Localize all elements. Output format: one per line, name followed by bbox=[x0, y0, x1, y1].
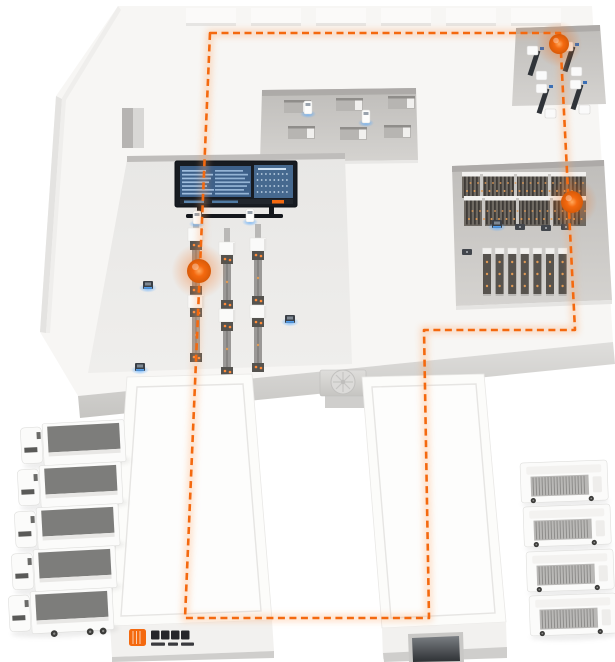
foot-indicator bbox=[260, 300, 263, 303]
roof-skylight bbox=[316, 8, 366, 26]
roof-skylight bbox=[446, 8, 496, 26]
carton-shade bbox=[233, 243, 235, 255]
screen-dot bbox=[282, 179, 284, 181]
box-truck bbox=[526, 549, 615, 598]
brand-char-block bbox=[161, 631, 170, 640]
screen-dot bbox=[278, 191, 280, 193]
workstation-desk bbox=[340, 127, 367, 140]
screen-header-line bbox=[258, 168, 286, 170]
device-panel bbox=[287, 317, 293, 320]
marker-dot bbox=[187, 259, 211, 283]
trailer-top bbox=[47, 423, 120, 453]
screen-dot bbox=[282, 191, 284, 193]
screen-dot bbox=[257, 179, 259, 181]
rack-column bbox=[546, 248, 555, 296]
marker-dot bbox=[561, 191, 583, 213]
screen-dot bbox=[257, 185, 259, 187]
hvac-fan-hub bbox=[341, 380, 345, 384]
cab-window bbox=[27, 558, 31, 565]
factory-illustration bbox=[0, 0, 615, 662]
screen-dot bbox=[269, 173, 271, 175]
station-conveyor-line bbox=[171, 243, 226, 298]
screen-dot bbox=[265, 179, 267, 181]
foot-indicator bbox=[255, 366, 258, 369]
screen-text-line bbox=[215, 189, 244, 191]
device-led bbox=[286, 321, 294, 323]
marker-highlight bbox=[192, 263, 199, 270]
rail-indicator bbox=[257, 344, 259, 346]
workstation-desk bbox=[388, 96, 415, 109]
rack-shuttle bbox=[541, 225, 551, 231]
screen-dot bbox=[269, 191, 271, 193]
screen-dot bbox=[278, 179, 280, 181]
dashboard-bar-accent bbox=[272, 200, 284, 204]
foot-indicator bbox=[224, 370, 227, 373]
foot-indicator bbox=[224, 325, 227, 328]
cab-stripe bbox=[18, 531, 31, 537]
cab-window bbox=[30, 516, 34, 523]
rack-column bbox=[533, 248, 542, 296]
screen-dot bbox=[286, 179, 288, 181]
screen-text-line bbox=[215, 178, 245, 180]
screen-dot bbox=[278, 185, 280, 187]
screen-dot bbox=[265, 185, 267, 187]
trailer-top bbox=[44, 465, 117, 495]
roof-skylight bbox=[186, 8, 236, 26]
conveyor-foot bbox=[252, 251, 264, 260]
rail-indicator bbox=[226, 348, 228, 350]
cab-block bbox=[596, 520, 606, 536]
semi-truck bbox=[8, 587, 119, 640]
screen-dot bbox=[269, 179, 271, 181]
dock-right-inner-floor bbox=[372, 384, 495, 618]
device-led bbox=[136, 369, 144, 371]
cab-window bbox=[36, 432, 40, 439]
screen-text-line bbox=[182, 189, 214, 191]
box-truck bbox=[523, 504, 613, 553]
trailer-top bbox=[38, 549, 111, 579]
illustration-stage bbox=[0, 0, 615, 662]
doorway-opening bbox=[412, 636, 460, 662]
cab-block bbox=[602, 609, 612, 625]
foot-indicator bbox=[229, 326, 232, 329]
cab-stripe bbox=[15, 573, 28, 579]
screen-dot bbox=[282, 185, 284, 187]
screen-dot bbox=[261, 179, 263, 181]
screen-dot bbox=[286, 191, 288, 193]
carton-shade bbox=[233, 310, 235, 322]
brand-char-block bbox=[181, 631, 190, 640]
rack-column bbox=[495, 248, 504, 296]
foot-indicator bbox=[229, 259, 232, 262]
station-storage-rack bbox=[547, 177, 598, 228]
screen-dot bbox=[282, 173, 284, 175]
brand-subtitle-block bbox=[181, 643, 194, 646]
conveyor-carton bbox=[250, 305, 266, 318]
foot-indicator bbox=[260, 367, 263, 370]
screen-text-line bbox=[215, 181, 250, 183]
marker-dot bbox=[549, 34, 569, 54]
screen-dot bbox=[286, 185, 288, 187]
rack-column bbox=[508, 248, 517, 296]
foot-indicator bbox=[260, 255, 263, 258]
foot-indicator bbox=[229, 304, 232, 307]
device-led bbox=[493, 226, 501, 228]
conveyor-foot bbox=[252, 318, 264, 327]
truck-fleet-right bbox=[520, 460, 615, 642]
agv-window bbox=[306, 103, 311, 106]
brand-subtitle-block bbox=[168, 643, 178, 646]
screen-dot bbox=[273, 173, 275, 175]
workstation-desk bbox=[384, 125, 411, 138]
cab-block bbox=[593, 476, 603, 492]
box-truck bbox=[529, 593, 615, 642]
brand-text bbox=[151, 631, 194, 646]
screen-text-line bbox=[215, 193, 249, 195]
cab-stripe bbox=[12, 615, 25, 621]
foot-indicator bbox=[255, 321, 258, 324]
brand-char-block bbox=[171, 631, 180, 640]
device-led bbox=[144, 287, 152, 289]
brand-char-block bbox=[151, 631, 160, 640]
screen-text-line bbox=[215, 185, 247, 187]
carton-shade bbox=[264, 306, 266, 318]
conveyor-stub bbox=[255, 224, 261, 238]
dashboard-bar-segment bbox=[212, 201, 238, 204]
screen-dot bbox=[273, 179, 275, 181]
conveyor-foot bbox=[252, 296, 264, 305]
rack-column bbox=[558, 248, 567, 296]
foot-indicator bbox=[229, 371, 232, 374]
brand-subtitle-block bbox=[151, 643, 165, 646]
workstation-desk bbox=[288, 126, 315, 139]
rack-shuttle bbox=[515, 224, 525, 230]
screen-dot bbox=[286, 173, 288, 175]
carton-shade bbox=[264, 239, 266, 251]
conveyor-foot bbox=[252, 363, 264, 372]
hvac-unit bbox=[320, 370, 366, 408]
conveyor-stub bbox=[224, 228, 230, 242]
roof-skylight bbox=[381, 8, 431, 26]
cab-block bbox=[599, 565, 609, 581]
foot-indicator bbox=[260, 322, 263, 325]
foot-indicator bbox=[255, 299, 258, 302]
conveyor-carton bbox=[219, 309, 235, 322]
screen-dot bbox=[265, 191, 267, 193]
device-panel bbox=[137, 365, 143, 368]
rack-shuttle bbox=[462, 249, 472, 255]
workstation-desk bbox=[336, 98, 363, 111]
roof-skylight bbox=[251, 8, 301, 26]
foot-indicator bbox=[255, 254, 258, 257]
device-panel bbox=[145, 283, 151, 286]
rail-indicator bbox=[226, 281, 228, 283]
screen-dot bbox=[269, 185, 271, 187]
device-panel bbox=[494, 222, 500, 225]
foot-indicator bbox=[224, 303, 227, 306]
cab-stripe bbox=[24, 447, 37, 453]
screen-text-line bbox=[182, 174, 213, 176]
rack-column bbox=[483, 248, 492, 296]
marker-highlight bbox=[553, 38, 559, 44]
screen-dot bbox=[273, 191, 275, 193]
conveyor-carton bbox=[250, 238, 266, 251]
agv-window bbox=[364, 112, 369, 115]
cab-window bbox=[24, 600, 28, 607]
screen-dot bbox=[261, 173, 263, 175]
screen-dot bbox=[261, 191, 263, 193]
agv-window bbox=[248, 211, 253, 214]
screen-dot bbox=[278, 173, 280, 175]
roof-notch-light-side bbox=[133, 108, 144, 148]
screen-dot bbox=[261, 185, 263, 187]
screen-dot bbox=[273, 185, 275, 187]
trailer-top bbox=[35, 591, 108, 621]
rail-indicator bbox=[257, 277, 259, 279]
cab-stripe bbox=[21, 489, 34, 495]
box-truck bbox=[520, 460, 610, 509]
conveyor-carton bbox=[219, 242, 235, 255]
brand-logo bbox=[129, 629, 194, 646]
rack-column bbox=[520, 248, 529, 296]
screen-text-line bbox=[215, 174, 248, 176]
screen-dot bbox=[257, 191, 259, 193]
station-inbound-machines bbox=[536, 21, 582, 67]
screen-text-line bbox=[182, 193, 212, 195]
screen-dot bbox=[257, 173, 259, 175]
marker-highlight bbox=[566, 195, 572, 201]
trailer-top bbox=[41, 507, 114, 537]
truck-fleet-left bbox=[8, 419, 131, 640]
screen-text-line bbox=[215, 170, 243, 172]
cab-window bbox=[33, 474, 37, 481]
brand-logo-icon bbox=[129, 629, 146, 646]
screen-dot bbox=[265, 173, 267, 175]
